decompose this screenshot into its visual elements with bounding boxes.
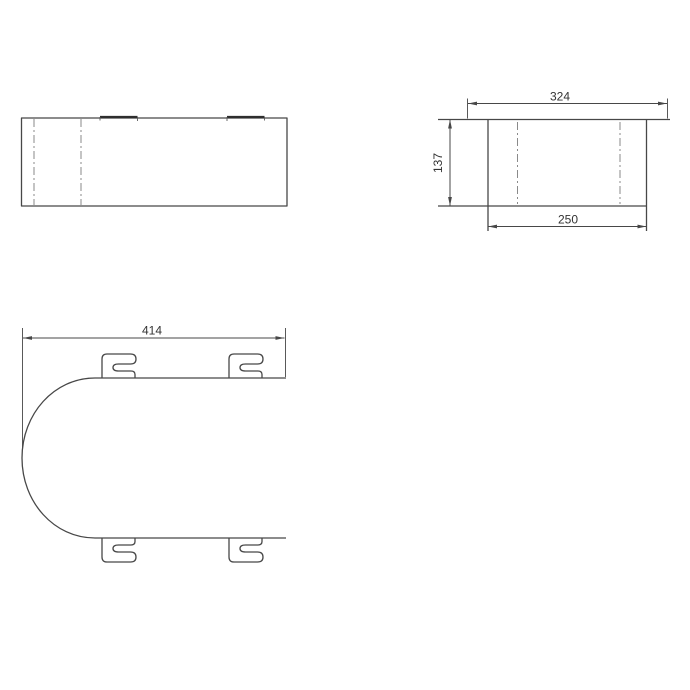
arrowhead-left — [468, 102, 477, 106]
mounting-clip — [229, 538, 263, 562]
bottom-view: 414 — [22, 324, 286, 563]
dimension-250-label: 250 — [558, 213, 578, 227]
dimension-137-label: 137 — [431, 153, 445, 173]
side-view: 324 137 250 — [431, 90, 670, 232]
arrowhead-top — [448, 120, 452, 129]
mounting-clip — [102, 538, 136, 562]
mounting-clip — [229, 354, 263, 378]
front-view — [22, 117, 288, 206]
technical-drawing: 324 137 250 — [0, 0, 690, 690]
dimension-414-label: 414 — [142, 324, 162, 338]
drawing-canvas: 324 137 250 — [0, 0, 690, 690]
dimension-324-label: 324 — [550, 90, 570, 104]
rounded-body-profile — [22, 378, 286, 538]
arrowhead-right — [276, 336, 285, 340]
arrowhead-left — [23, 336, 32, 340]
arrowhead-right — [658, 102, 667, 106]
dimension-flange-width: 324 — [468, 90, 668, 119]
dimension-body-height: 137 — [431, 120, 467, 207]
mounting-clip — [102, 354, 136, 378]
arrowhead-right — [638, 225, 647, 229]
front-view-body-outline — [22, 118, 288, 206]
arrowhead-bottom — [448, 197, 452, 206]
dimension-body-width: 250 — [488, 213, 647, 229]
arrowhead-left — [488, 225, 497, 229]
